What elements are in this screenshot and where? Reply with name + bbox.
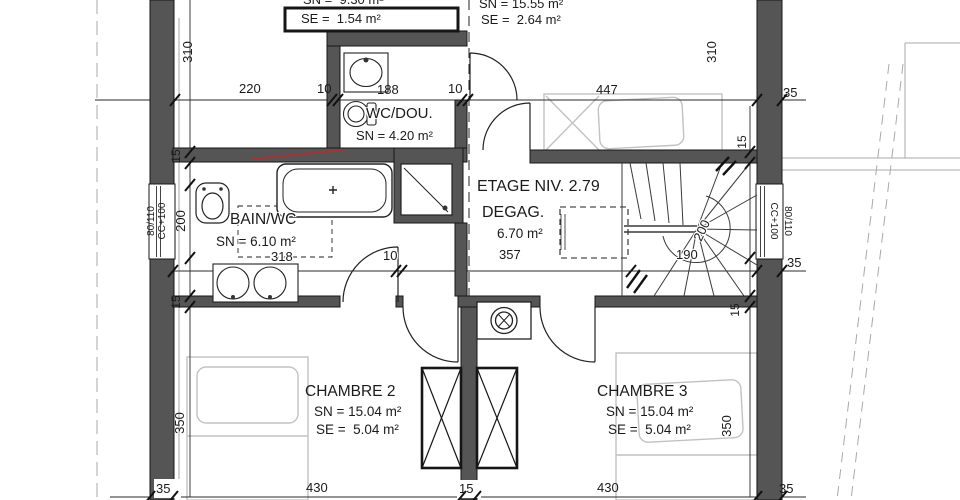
- plan-linework: [0, 0, 960, 500]
- flue-vent: [477, 302, 531, 339]
- dim-mid-318: 318: [271, 250, 293, 263]
- room-wc-shower-sn: SN = 4.20 m²: [356, 129, 433, 142]
- room-bedroom3-name: CHAMBRE 3: [597, 384, 687, 400]
- dim-left-200: 200: [174, 201, 190, 241]
- room-bedroom2-sn: SN = 15.04 m²: [314, 405, 401, 419]
- dim-top-447: 447: [596, 83, 618, 96]
- dim-bottom-35R: 35: [779, 482, 793, 495]
- dim-left-15a: 15: [170, 136, 186, 176]
- trap-hatch-dashed: [560, 207, 628, 258]
- room-landing-name: DEGAG.: [482, 205, 544, 221]
- boundary-lines: [97, 0, 960, 500]
- room-bedroom3-se: SE = 5.04 m²: [608, 423, 691, 437]
- attic-sn-label: SN = 9.30 m²: [303, 0, 384, 6]
- dim-mid-190: 190: [676, 248, 698, 261]
- bedroom-top-se-label: SE = 2.64 m²: [481, 13, 561, 26]
- floor-plan-canvas: SN = 9.30 m² SE = 1.54 m² SN = 15.55 m² …: [0, 0, 960, 500]
- dim-top-220: 220: [239, 82, 261, 95]
- attic-se-label: SE = 1.54 m²: [301, 12, 381, 25]
- dim-top-188: 188: [377, 83, 399, 96]
- room-bathroom-sn: SN = 6.10 m²: [216, 235, 296, 249]
- dim-top-10a: 10: [317, 82, 331, 95]
- dim-left-15b: 15: [170, 282, 186, 322]
- dim-right-350: 350: [720, 406, 736, 446]
- room-bathroom-name: BAIN/WC: [230, 212, 296, 228]
- dim-right-310: 310: [705, 32, 721, 72]
- bathtub: [277, 164, 392, 217]
- bedroom-top-sn-label: SN = 15.55 m²: [479, 0, 563, 10]
- dim-right-15a: 15: [736, 122, 752, 162]
- dim-left-350: 350: [173, 403, 189, 443]
- toilet-bathroom: [196, 183, 229, 223]
- floor-level-label: ETAGE NIV. 2.79: [477, 179, 600, 195]
- dim-top-10b: 10: [448, 82, 462, 95]
- window-left-sill-label: CC+100: [158, 196, 174, 246]
- window-right-size-label: 80/110: [776, 196, 792, 246]
- dim-bottom-430R: 430: [597, 481, 619, 494]
- dim-left-310: 310: [181, 32, 197, 72]
- room-wc-shower-name: WC/DOU.: [366, 106, 433, 121]
- room-landing-area: 6.70 m²: [497, 227, 543, 241]
- room-bedroom2-name: CHAMBRE 2: [305, 384, 395, 400]
- dim-top-35: 35: [783, 86, 797, 99]
- dim-mid-10: 10: [383, 249, 397, 262]
- dim-bottom-15: 15: [459, 482, 473, 495]
- dim-mid-357: 357: [499, 248, 521, 261]
- dim-right-15b: 15: [729, 290, 745, 330]
- staircase: [622, 163, 757, 296]
- room-bedroom2-se: SE = 5.04 m²: [316, 423, 399, 437]
- shower: [401, 164, 452, 215]
- room-bedroom3-sn: SN = 15.04 m²: [606, 405, 693, 419]
- dim-mid-35: 35: [787, 256, 801, 269]
- dim-bottom-430L: 430: [306, 481, 328, 494]
- double-vanity: [213, 264, 298, 302]
- dim-bottom-35L: 35: [156, 482, 170, 495]
